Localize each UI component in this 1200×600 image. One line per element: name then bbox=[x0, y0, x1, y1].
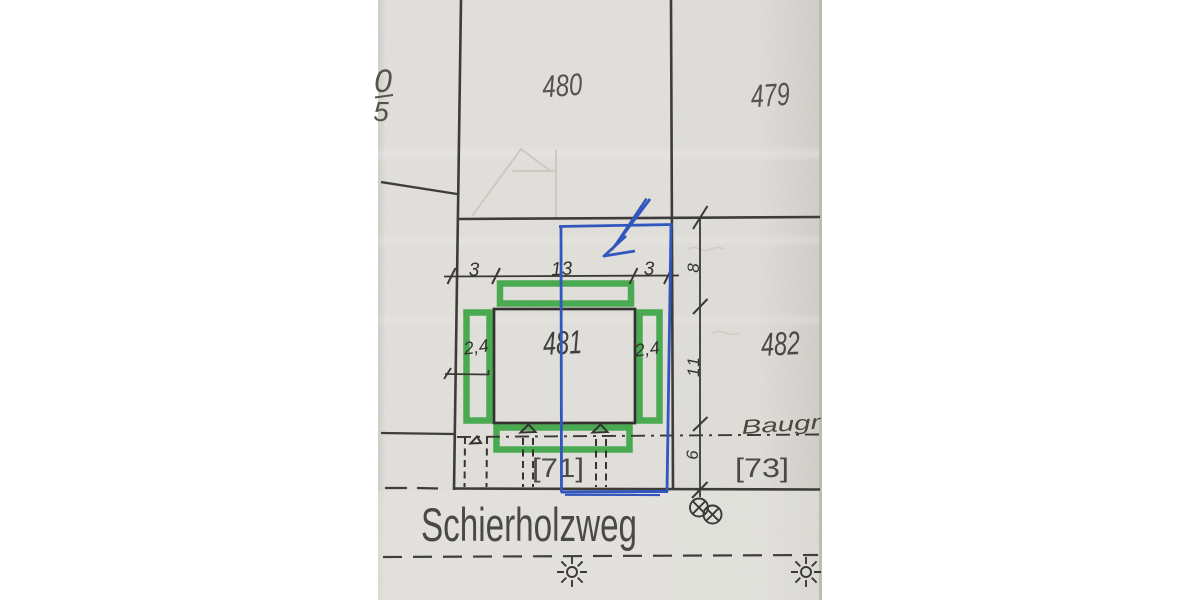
svg-text:3: 3 bbox=[469, 260, 480, 281]
svg-text:0: 0 bbox=[374, 63, 392, 99]
svg-text:2,4: 2,4 bbox=[632, 337, 661, 360]
svg-text:482: 482 bbox=[760, 324, 801, 363]
svg-text:479: 479 bbox=[750, 76, 792, 115]
svg-text:6: 6 bbox=[683, 450, 702, 460]
svg-text:11: 11 bbox=[684, 355, 703, 377]
svg-text:480: 480 bbox=[541, 67, 583, 105]
svg-text:5: 5 bbox=[373, 96, 389, 127]
svg-text:[71]: [71] bbox=[532, 453, 584, 483]
svg-text:3: 3 bbox=[644, 259, 655, 280]
svg-text:8: 8 bbox=[684, 263, 703, 273]
svg-text:2,4: 2,4 bbox=[461, 335, 490, 358]
svg-text:Schierholzweg: Schierholzweg bbox=[421, 498, 637, 551]
svg-text:[73]: [73] bbox=[735, 453, 789, 483]
